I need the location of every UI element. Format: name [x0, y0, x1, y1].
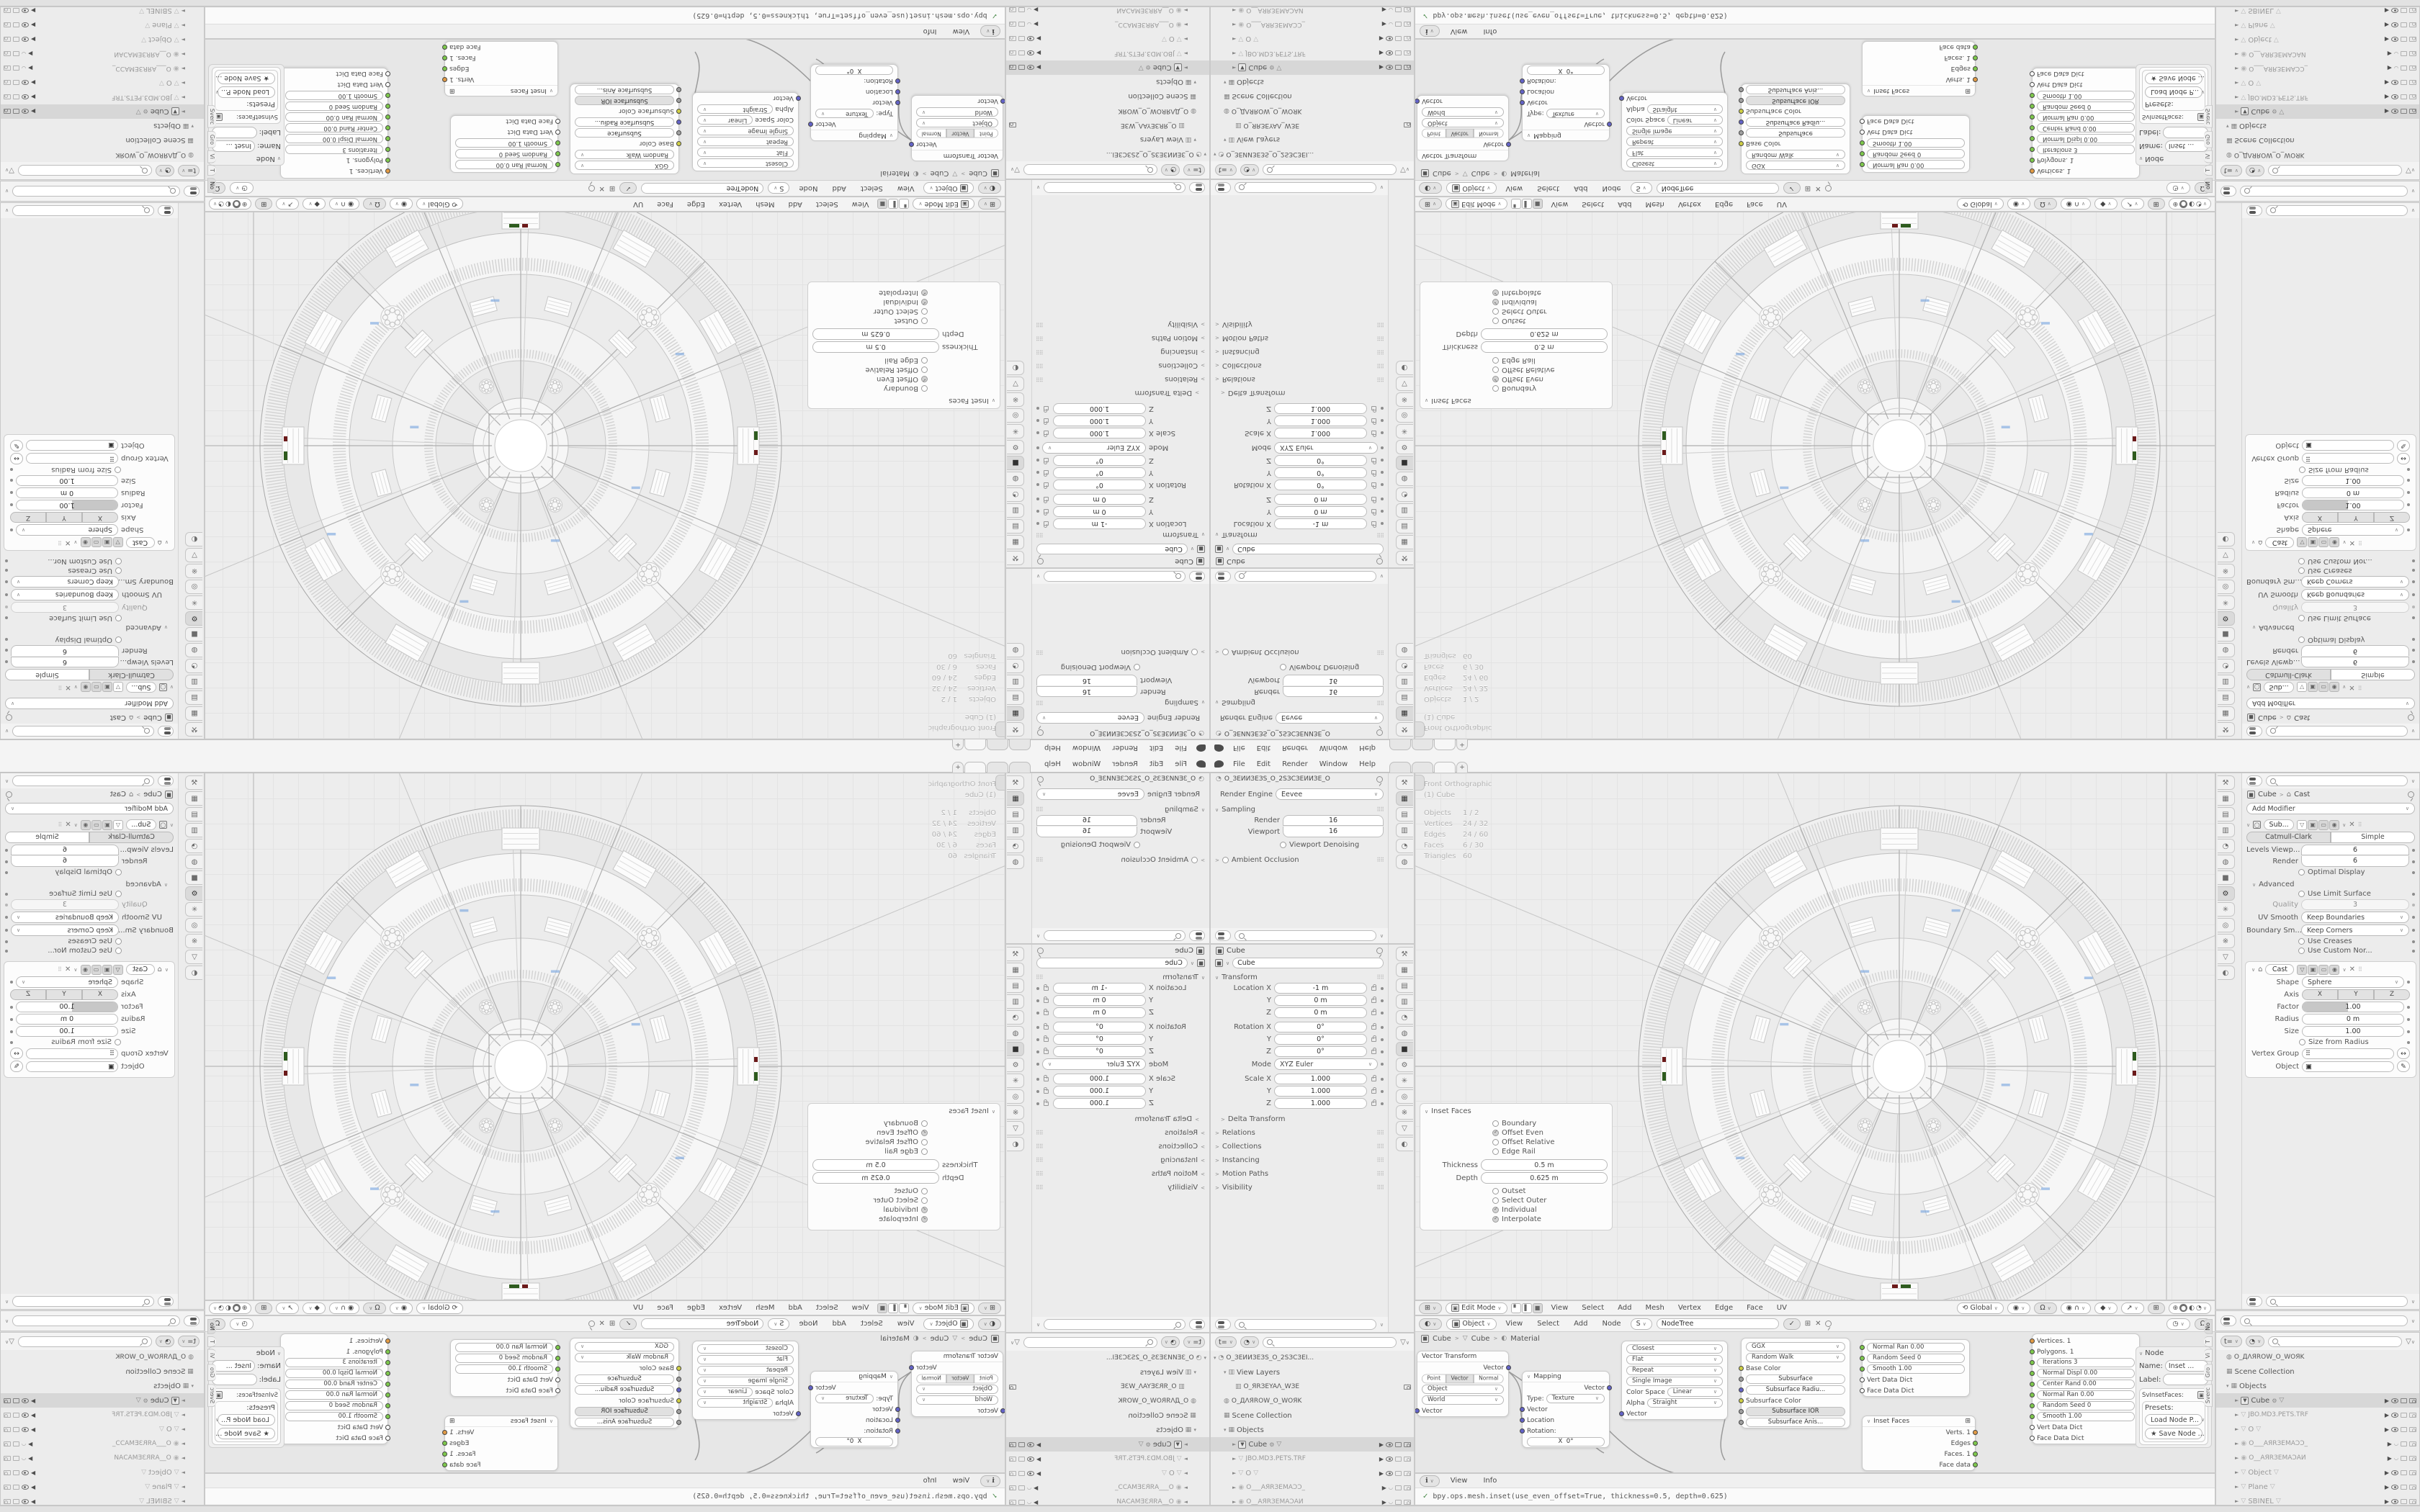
- material-shading-icon[interactable]: ◐: [225, 201, 231, 208]
- panel-grip-icon[interactable]: ⠿⠿: [1036, 974, 1044, 981]
- expand-icon[interactable]: ►: [1232, 7, 1236, 13]
- camera-icon[interactable]: [2409, 1441, 2416, 1446]
- pin-icon[interactable]: [2408, 714, 2414, 721]
- info-log-line[interactable]: bpy.ops.mesh.inset(use_even_offset=True,…: [692, 1493, 987, 1500]
- menu-edit[interactable]: Edit: [1252, 760, 1276, 768]
- socket-edges-out[interactable]: [1973, 1441, 1978, 1446]
- imgtex-alpha-select[interactable]: Straight∨: [1647, 104, 1723, 114]
- node-vector-transform[interactable]: Vector Transform Vector PointVectorNorma…: [911, 95, 1003, 161]
- socket-vert-data2[interactable]: [2030, 82, 2035, 87]
- search-input[interactable]: [2240, 1315, 2408, 1326]
- node-principled-bsdf[interactable]: GGX∨ Random Walk∨ Base Color Subsurface …: [1741, 1338, 1850, 1428]
- socket-random-seed[interactable]: [1860, 1356, 1865, 1361]
- quality-field[interactable]: 3: [2301, 602, 2409, 613]
- expand-icon[interactable]: ►: [1184, 1456, 1188, 1462]
- socket-random-seed[interactable]: [555, 151, 560, 156]
- socket-base-color[interactable]: [1739, 141, 1744, 146]
- pin-icon[interactable]: [1037, 948, 1044, 954]
- close-icon[interactable]: ✕: [65, 683, 71, 691]
- lock-icon[interactable]: [1371, 1038, 1376, 1042]
- camera-icon[interactable]: [4, 1427, 11, 1432]
- monitor-icon[interactable]: [1395, 1442, 1402, 1447]
- sv-random-seed-field[interactable]: Random Seed 0: [455, 149, 553, 158]
- simple-tab[interactable]: Simple: [2331, 832, 2415, 843]
- socket-location-in[interactable]: [895, 89, 900, 94]
- info-menu-info[interactable]: Info: [918, 27, 942, 35]
- add-modifier-button[interactable]: Add Modifier∨: [2246, 803, 2415, 814]
- cast-object-field[interactable]: ▣: [2302, 441, 2394, 451]
- socket-normal-ran2[interactable]: [385, 1392, 390, 1398]
- funnel-filter-icon[interactable]: ▽∨: [2406, 1338, 2415, 1346]
- edit-mode-display-icon[interactable]: ▣: [2308, 683, 2318, 693]
- ne-menu-select[interactable]: Select: [856, 184, 888, 192]
- tab-viewlayer-icon[interactable]: ▥: [186, 823, 203, 837]
- outliner-item[interactable]: Object: [2248, 1469, 2272, 1477]
- filter-toggle-icon[interactable]: [158, 205, 174, 216]
- modifier-expand-icon[interactable]: ∨: [170, 685, 174, 690]
- outliner-item[interactable]: O__AЯRЗEMAƆAИ: [2249, 1454, 2305, 1462]
- bsdf-subsurface-aniso-field[interactable]: Subsurface Anis...: [1746, 1418, 1845, 1427]
- eye-icon[interactable]: [2391, 1499, 2398, 1504]
- socket-facedata-out[interactable]: [1973, 1462, 1978, 1467]
- vp-menu-edge[interactable]: Edge: [682, 1304, 710, 1312]
- socket-subsurface-radius[interactable]: [1739, 1387, 1744, 1392]
- outliner-item[interactable]: JBO.MD3.PETS.TRF: [1245, 50, 1306, 57]
- animate-dot[interactable]: [1381, 472, 1384, 474]
- shape-select[interactable]: Sphere∨: [16, 524, 118, 536]
- selectable-icon[interactable]: ▶: [2385, 109, 2389, 115]
- section-instancing[interactable]: Instancing: [1222, 1156, 1260, 1164]
- wireframe-shading-icon[interactable]: ⊕: [2173, 1305, 2179, 1312]
- section-expand-icon[interactable]: >: [1215, 1185, 1219, 1191]
- selectable-icon[interactable]: ▶: [1382, 7, 1386, 14]
- section-expand-icon[interactable]: >: [1195, 390, 1199, 396]
- outliner-item[interactable]: O___AЯRЗEMAƆƆ_: [2249, 65, 2308, 72]
- edit-mode-display-icon[interactable]: ▣: [2308, 538, 2318, 548]
- outliner-world-row[interactable]: O_ДΛЯROW_O_WOЯK: [116, 151, 186, 158]
- section-visibility[interactable]: Visibility: [1222, 1184, 1252, 1192]
- menu-file[interactable]: File: [1228, 760, 1250, 768]
- filter-toggle-icon[interactable]: [1189, 182, 1205, 193]
- socket-random-seed2[interactable]: [2030, 104, 2035, 109]
- tab-output-icon[interactable]: ▤: [1008, 690, 1025, 705]
- tab-physics-icon[interactable]: ◎: [1008, 1089, 1025, 1104]
- expand-icon[interactable]: ►: [2235, 109, 2238, 114]
- lock-icon[interactable]: [1044, 471, 1049, 475]
- tab-particles-icon[interactable]: ✳: [2218, 902, 2235, 917]
- outliner-scene-collection-row[interactable]: Scene Collection: [1232, 93, 1292, 101]
- use-custom-normals-checkbox[interactable]: [2298, 948, 2305, 954]
- axis-x-button[interactable]: X: [82, 512, 118, 523]
- vp-menu-vertex[interactable]: Vertex: [714, 200, 747, 208]
- realtime-icon[interactable]: ▭: [91, 820, 102, 830]
- imgtex-alpha-select[interactable]: Straight∨: [697, 104, 773, 114]
- funnel-filter-icon[interactable]: ▽∨: [1010, 1338, 1020, 1346]
- socket-vector-out[interactable]: [909, 1365, 914, 1370]
- animate-dot[interactable]: [1381, 446, 1384, 449]
- workspace-tab-3[interactable]: [964, 740, 986, 751]
- lock-icon[interactable]: [1371, 1011, 1376, 1015]
- realtime-icon[interactable]: ▭: [2318, 538, 2329, 548]
- tab-scene-icon[interactable]: ◔: [1008, 1010, 1025, 1025]
- socket-smooth2[interactable]: [385, 93, 390, 98]
- bsdf-subsurface-aniso-field[interactable]: Subsurface Anis...: [575, 1418, 674, 1427]
- outset-checkbox[interactable]: [1492, 318, 1499, 324]
- tab-output-icon[interactable]: ▤: [1396, 690, 1413, 705]
- vp-menu-vertex[interactable]: Vertex: [714, 1304, 747, 1312]
- uv-smooth-select[interactable]: Keep Boundaries∨: [11, 589, 119, 600]
- options-chevron-icon[interactable]: ∨: [2411, 1299, 2415, 1305]
- outliner-world-row[interactable]: O_ДΛЯROW_O_WOЯK: [1232, 107, 1301, 114]
- catmull-clark-tab[interactable]: Catmull-Clark: [2246, 669, 2331, 680]
- outliner-display-mode[interactable]: t=∨: [178, 165, 200, 176]
- select-outer-checkbox[interactable]: [921, 308, 928, 315]
- vertex-group-field[interactable]: ⠿: [26, 1048, 118, 1059]
- camera-icon[interactable]: [1404, 22, 1411, 27]
- filter-toggle-icon[interactable]: [158, 775, 174, 786]
- options-chevron-icon[interactable]: ∨: [5, 729, 9, 734]
- options-chevron-icon[interactable]: ∨: [5, 1299, 9, 1305]
- scale-x-field[interactable]: 1.000: [1053, 1074, 1146, 1084]
- bsdf-sss-method-select[interactable]: Random Walk∨: [575, 1353, 674, 1362]
- panel-grip-icon[interactable]: ⠿⠿: [1036, 531, 1044, 538]
- section-relations[interactable]: Relations: [1165, 1129, 1198, 1137]
- panel-grip-icon[interactable]: ⠿⠿: [1376, 649, 1384, 655]
- tab-physics-icon[interactable]: ◎: [2218, 580, 2235, 594]
- invert-vgroup-icon[interactable]: ↔: [2397, 1048, 2410, 1059]
- vertex-group-field[interactable]: ⠿: [26, 454, 118, 464]
- selectable-icon[interactable]: ▶: [2385, 1398, 2389, 1404]
- rot-z-field[interactable]: 0°: [1053, 455, 1146, 466]
- lock-icon[interactable]: [1371, 431, 1376, 436]
- pin-icon[interactable]: [1376, 558, 1383, 564]
- use-limit-checkbox[interactable]: [2298, 615, 2305, 621]
- editor-type-button[interactable]: ◐∨: [978, 183, 1001, 194]
- camera-icon[interactable]: [1009, 22, 1016, 27]
- outliner-scene-row[interactable]: O_ЗЕИИЗЕЗS_O_2SЗСЗЕI...: [1226, 1354, 1314, 1362]
- show-gizmo-toggle[interactable]: ◆∨: [2094, 1302, 2117, 1314]
- tab-constraints-icon[interactable]: ※: [1008, 392, 1025, 407]
- tab-constraints-icon[interactable]: ※: [186, 564, 203, 578]
- boundary-smooth-select[interactable]: Keep Corners∨: [11, 576, 119, 588]
- monitor-icon[interactable]: [13, 95, 19, 100]
- vertex-group-field[interactable]: ⠿: [2302, 454, 2394, 464]
- expand-icon[interactable]: ►: [1184, 1485, 1188, 1490]
- vp-menu-select[interactable]: Select: [1577, 1304, 1609, 1312]
- vp-menu-mesh[interactable]: Mesh: [750, 200, 779, 208]
- rot-mode-select[interactable]: XYZ Euler∨: [1274, 1058, 1378, 1070]
- eye-icon[interactable]: [1027, 66, 1034, 71]
- tab-viewlayer-icon[interactable]: ▥: [1008, 675, 1025, 689]
- selectable-icon[interactable]: ▶: [2385, 1498, 2389, 1505]
- camera-icon[interactable]: [4, 9, 11, 14]
- ntab-group[interactable]: Gro: [2204, 1364, 2213, 1381]
- camera-icon[interactable]: [1009, 1485, 1016, 1490]
- socket-location-in[interactable]: [895, 1418, 900, 1423]
- camera-icon[interactable]: [1404, 37, 1411, 42]
- size-from-radius-checkbox[interactable]: [115, 467, 121, 473]
- menu-file[interactable]: File: [1170, 760, 1192, 768]
- panel-grip-icon[interactable]: ⠿⠿: [1376, 806, 1384, 813]
- hidden-icon[interactable]: ◡: [1389, 22, 1393, 27]
- add-workspace-button[interactable]: +: [952, 762, 964, 773]
- socket-vert-data[interactable]: [1860, 1377, 1865, 1382]
- extras-chevron-icon[interactable]: ∨: [2342, 540, 2346, 546]
- axis-z-button[interactable]: Z: [2374, 989, 2410, 1000]
- info-editor-type-button[interactable]: ℹ∨: [1420, 1475, 1440, 1487]
- ne-menu-node[interactable]: Node: [794, 184, 823, 192]
- tab-physics-icon[interactable]: ◎: [186, 580, 203, 594]
- socket-subsurface-radius[interactable]: [1739, 120, 1744, 125]
- node-sv-inset-faces[interactable]: ∨Inset Faces⊞ Verts. 1 Edges Faces. 1 Fa…: [444, 41, 558, 96]
- outliner-item[interactable]: O: [2248, 1426, 2254, 1434]
- tab-world-icon[interactable]: ◍: [1008, 472, 1025, 486]
- expand-icon[interactable]: ▾: [1214, 151, 1216, 157]
- monitor-icon[interactable]: [1018, 1485, 1025, 1490]
- ao-expand-icon[interactable]: >: [1215, 858, 1219, 863]
- hidden-icon[interactable]: ◡: [1027, 22, 1031, 27]
- vt-to-select[interactable]: World∨: [1422, 107, 1504, 117]
- shader-type-select[interactable]: ■Object∨: [924, 183, 974, 194]
- animate-dot[interactable]: [1036, 1050, 1039, 1053]
- tab-data-icon[interactable]: ▽: [2218, 548, 2235, 562]
- animate-dot[interactable]: [1381, 999, 1384, 1002]
- socket-random-seed2[interactable]: [2030, 1403, 2035, 1408]
- use-custom-normals-checkbox[interactable]: [115, 948, 122, 954]
- expand-icon[interactable]: ▾: [1204, 151, 1206, 157]
- node-mapping[interactable]: ∨Mapping Vector Type:Texture∨ Vector Loc…: [810, 64, 898, 141]
- bsdf-distribution-select[interactable]: GGX∨: [1746, 161, 1845, 170]
- tab-data-icon[interactable]: ▽: [186, 950, 203, 964]
- axis-y-button[interactable]: Y: [2338, 512, 2374, 523]
- selectable-icon[interactable]: ▶: [31, 80, 35, 86]
- animate-dot[interactable]: [1381, 1102, 1384, 1105]
- ntab-tool[interactable]: T: [2204, 1336, 2213, 1347]
- rot-mode-select[interactable]: XYZ Euler∨: [1042, 1058, 1146, 1070]
- expand-icon[interactable]: ▾: [1224, 1427, 1227, 1433]
- socket-vector-in[interactable]: [1000, 99, 1005, 104]
- eye-icon[interactable]: [22, 1499, 29, 1504]
- camera-icon[interactable]: [1009, 123, 1016, 128]
- eye-icon[interactable]: [2391, 109, 2398, 114]
- outliner-item[interactable]: Plane: [152, 22, 171, 30]
- tab-output-icon[interactable]: ▤: [186, 807, 203, 822]
- tab-physics-icon[interactable]: ◎: [1008, 408, 1025, 423]
- bsdf-subsurface-radius-field[interactable]: Subsurface Radiu...: [1746, 1385, 1845, 1395]
- socket-vector-in[interactable]: [1520, 100, 1525, 105]
- eye-icon[interactable]: [2391, 1470, 2398, 1475]
- tab-particles-icon[interactable]: ✳: [1396, 1074, 1413, 1088]
- scale-y-field[interactable]: 1.000: [1053, 1086, 1146, 1097]
- rot-y-field[interactable]: 0°: [1053, 467, 1146, 478]
- bsdf-sss-method-select[interactable]: Random Walk∨: [1746, 150, 1845, 159]
- eye-icon[interactable]: [2391, 95, 2398, 100]
- vp-menu-uv[interactable]: UV: [1772, 200, 1792, 208]
- socket-facedata-out[interactable]: [1973, 45, 1978, 50]
- snap-toggle[interactable]: Ω∨: [363, 1302, 385, 1314]
- edit-cage-icon[interactable]: ▽: [113, 820, 123, 830]
- tab-tool-icon[interactable]: ⚒: [186, 722, 203, 737]
- socket-random-seed2[interactable]: [385, 1403, 390, 1408]
- animate-dot[interactable]: [1036, 510, 1039, 513]
- sv-smooth-field[interactable]: Smooth 1.00: [455, 138, 553, 148]
- socket-vector-in[interactable]: [1619, 96, 1624, 101]
- camera-icon[interactable]: [4, 1398, 11, 1403]
- outliner-item[interactable]: Cube: [1153, 1441, 1172, 1449]
- socket-edges-out[interactable]: [442, 1441, 447, 1446]
- tab-scene-icon[interactable]: ◔: [1396, 1010, 1413, 1025]
- camera-icon[interactable]: [4, 23, 11, 28]
- socket-base-color[interactable]: [676, 1366, 681, 1371]
- tab-data-icon[interactable]: ▽: [1008, 377, 1025, 391]
- vt-to-select[interactable]: World∨: [1422, 1395, 1504, 1405]
- lock-icon[interactable]: [1371, 1025, 1376, 1030]
- node-mapping[interactable]: ∨Mapping Vector Type:Texture∨ Vector Loc…: [810, 1371, 898, 1448]
- load-node-preset-button[interactable]: Load Node P...∨: [218, 86, 275, 98]
- outliner-item[interactable]: O: [1169, 1470, 1175, 1477]
- edit-cage-icon[interactable]: ▽: [2297, 820, 2307, 830]
- offset-relative-checkbox[interactable]: [921, 1139, 928, 1146]
- socket-smooth2[interactable]: [2030, 93, 2035, 98]
- camera-icon[interactable]: [4, 1441, 11, 1446]
- info-log-line[interactable]: bpy.ops.mesh.inset(use_even_offset=True,…: [1433, 1493, 1727, 1500]
- use-creases-checkbox[interactable]: [2298, 938, 2305, 945]
- selectable-icon[interactable]: ▶: [31, 109, 35, 115]
- eye-icon[interactable]: [22, 1427, 29, 1432]
- render-display-icon[interactable]: ◉: [2329, 683, 2339, 693]
- sv-normal-displ-field[interactable]: Normal Displ 0.00: [285, 1369, 383, 1378]
- socket-subsurface-aniso[interactable]: [1739, 87, 1744, 92]
- outliner-filter-obj-icon[interactable]: ◔∨: [1161, 1336, 1180, 1348]
- vp-menu-face[interactable]: Face: [652, 200, 678, 208]
- animate-dot[interactable]: [1381, 1090, 1384, 1093]
- vt-from-select[interactable]: Object∨: [916, 118, 998, 127]
- expand-icon[interactable]: ►: [2235, 1441, 2238, 1446]
- socket-normal-ran2[interactable]: [385, 114, 390, 120]
- edit-mode-display-icon[interactable]: ▣: [102, 683, 112, 693]
- menu-edit[interactable]: Edit: [1144, 760, 1168, 768]
- wireframe-shading-icon[interactable]: ⊕: [2173, 201, 2179, 208]
- selectable-icon[interactable]: ▶: [1379, 1470, 1384, 1477]
- animate-dot[interactable]: [1036, 1012, 1039, 1014]
- selectable-icon[interactable]: ▶: [2385, 37, 2389, 43]
- monitor-icon[interactable]: [2401, 37, 2407, 42]
- selectable-icon[interactable]: ▶: [1036, 50, 1041, 57]
- ntab-view[interactable]: Vi: [2204, 150, 2213, 163]
- eye-icon[interactable]: [2391, 1413, 2398, 1418]
- object-type-icon[interactable]: ■: [1215, 959, 1223, 967]
- selectable-icon[interactable]: ▶: [31, 1412, 35, 1418]
- npanel-name-field[interactable]: Inset ...: [212, 1360, 255, 1372]
- section-delta-transform[interactable]: Delta Transform: [1228, 389, 1286, 397]
- camera-icon[interactable]: [2409, 95, 2416, 100]
- boundary-checkbox[interactable]: [921, 385, 928, 392]
- vt-normal-button[interactable]: Normal: [916, 129, 946, 138]
- edit-cage-icon[interactable]: ▽: [2297, 538, 2307, 548]
- modifier-expand-icon[interactable]: ∨: [165, 967, 169, 973]
- object-name-field[interactable]: Cube: [1232, 958, 1384, 968]
- info-menu-view[interactable]: View: [1446, 27, 1473, 35]
- lock-icon[interactable]: [1371, 483, 1376, 487]
- bsdf-subsurface-ior-field[interactable]: Subsurface IOR: [1746, 96, 1845, 105]
- outliner-display-mode[interactable]: t=∨: [2220, 165, 2242, 176]
- funnel-filter-icon[interactable]: ▽∨: [5, 1338, 14, 1346]
- tab-render-icon[interactable]: ▦: [1396, 535, 1413, 549]
- lock-icon[interactable]: [1044, 419, 1049, 423]
- expand-icon[interactable]: ▾: [1224, 1369, 1227, 1375]
- render-display-icon[interactable]: ◉: [81, 965, 91, 975]
- advanced-expand-icon[interactable]: ∨: [164, 625, 168, 631]
- socket-verts-out[interactable]: [1973, 77, 1978, 82]
- socket-subsurface[interactable]: [1739, 130, 1744, 135]
- drag-grip-icon[interactable]: ⠿: [2358, 539, 2362, 546]
- lock-icon[interactable]: [1044, 1089, 1049, 1094]
- pin-icon[interactable]: [6, 714, 12, 721]
- eye-icon[interactable]: [1027, 1457, 1034, 1462]
- panel-grip-icon[interactable]: ⠿⠿: [1376, 857, 1384, 863]
- search-input[interactable]: [1234, 1319, 1376, 1330]
- show-gizmo-toggle[interactable]: ◆∨: [2094, 199, 2117, 210]
- node-sv-inset-upper[interactable]: Normal Ran 0.00 Random Seed 0 Smooth 1.0…: [1862, 115, 1970, 173]
- animate-dot[interactable]: [1036, 420, 1039, 423]
- bsdf-distribution-select[interactable]: GGX∨: [1746, 1342, 1845, 1351]
- section-relations[interactable]: Relations: [1165, 375, 1198, 383]
- monitor-icon[interactable]: [1395, 8, 1402, 13]
- animate-dot[interactable]: [1381, 498, 1384, 501]
- npanel-name-field[interactable]: Inset ...: [212, 140, 255, 152]
- close-icon[interactable]: ✕: [2349, 683, 2354, 691]
- monitor-icon[interactable]: [13, 1499, 19, 1504]
- section-collections[interactable]: Collections: [1222, 1143, 1262, 1151]
- expand-icon[interactable]: ►: [1184, 50, 1188, 56]
- pin-icon[interactable]: [1376, 948, 1383, 954]
- select-outer-checkbox[interactable]: [1492, 1197, 1499, 1204]
- edit-mode-display-icon[interactable]: ▣: [102, 820, 112, 830]
- expand-icon[interactable]: ►: [1232, 1485, 1236, 1490]
- eye-icon[interactable]: [22, 1470, 29, 1475]
- loc-x-field[interactable]: -1 m: [1053, 983, 1146, 994]
- ntab-view[interactable]: Vi: [207, 150, 216, 163]
- outliner-scene-collection-row[interactable]: Scene Collection: [2235, 137, 2295, 145]
- tab-world-icon[interactable]: ◍: [1008, 643, 1025, 657]
- camera-icon[interactable]: [4, 52, 11, 57]
- tree-type-icon[interactable]: S∨: [768, 1318, 789, 1330]
- lock-icon[interactable]: [1371, 1102, 1376, 1106]
- tab-object-icon[interactable]: ■: [1396, 456, 1413, 470]
- orientation-select[interactable]: ⟲Global∨: [1957, 1302, 2004, 1314]
- sv-random-seed2-field[interactable]: Random Seed 0: [285, 1401, 383, 1410]
- tab-data-icon[interactable]: ▽: [1396, 377, 1413, 391]
- expand-icon[interactable]: ▾: [1214, 1355, 1216, 1361]
- viewport-3d[interactable]: Front Orthographic (1) Cube Objects1 / 2…: [205, 212, 1005, 739]
- filter-toggle-icon[interactable]: [184, 186, 200, 197]
- quality-field[interactable]: 3: [11, 899, 119, 910]
- selectable-icon[interactable]: ▶: [1034, 1499, 1038, 1506]
- axis-z-button[interactable]: Z: [2374, 512, 2410, 523]
- search-input[interactable]: [1234, 571, 1376, 582]
- filter-toggle-icon[interactable]: [2246, 775, 2262, 786]
- socket-iterations[interactable]: [385, 1360, 390, 1365]
- bsdf-distribution-select[interactable]: GGX∨: [575, 161, 674, 170]
- menu-render[interactable]: Render: [1277, 744, 1313, 752]
- loc-x-field[interactable]: -1 m: [1274, 983, 1367, 994]
- vertex-select-icon[interactable]: ▘: [899, 199, 909, 210]
- tab-scene-icon[interactable]: ◔: [1396, 487, 1413, 502]
- eye-icon[interactable]: [1386, 1442, 1393, 1447]
- camera-icon[interactable]: [1404, 1457, 1411, 1462]
- vp-menu-add[interactable]: Add: [784, 1304, 807, 1312]
- crumb-object[interactable]: Cube: [2258, 791, 2277, 798]
